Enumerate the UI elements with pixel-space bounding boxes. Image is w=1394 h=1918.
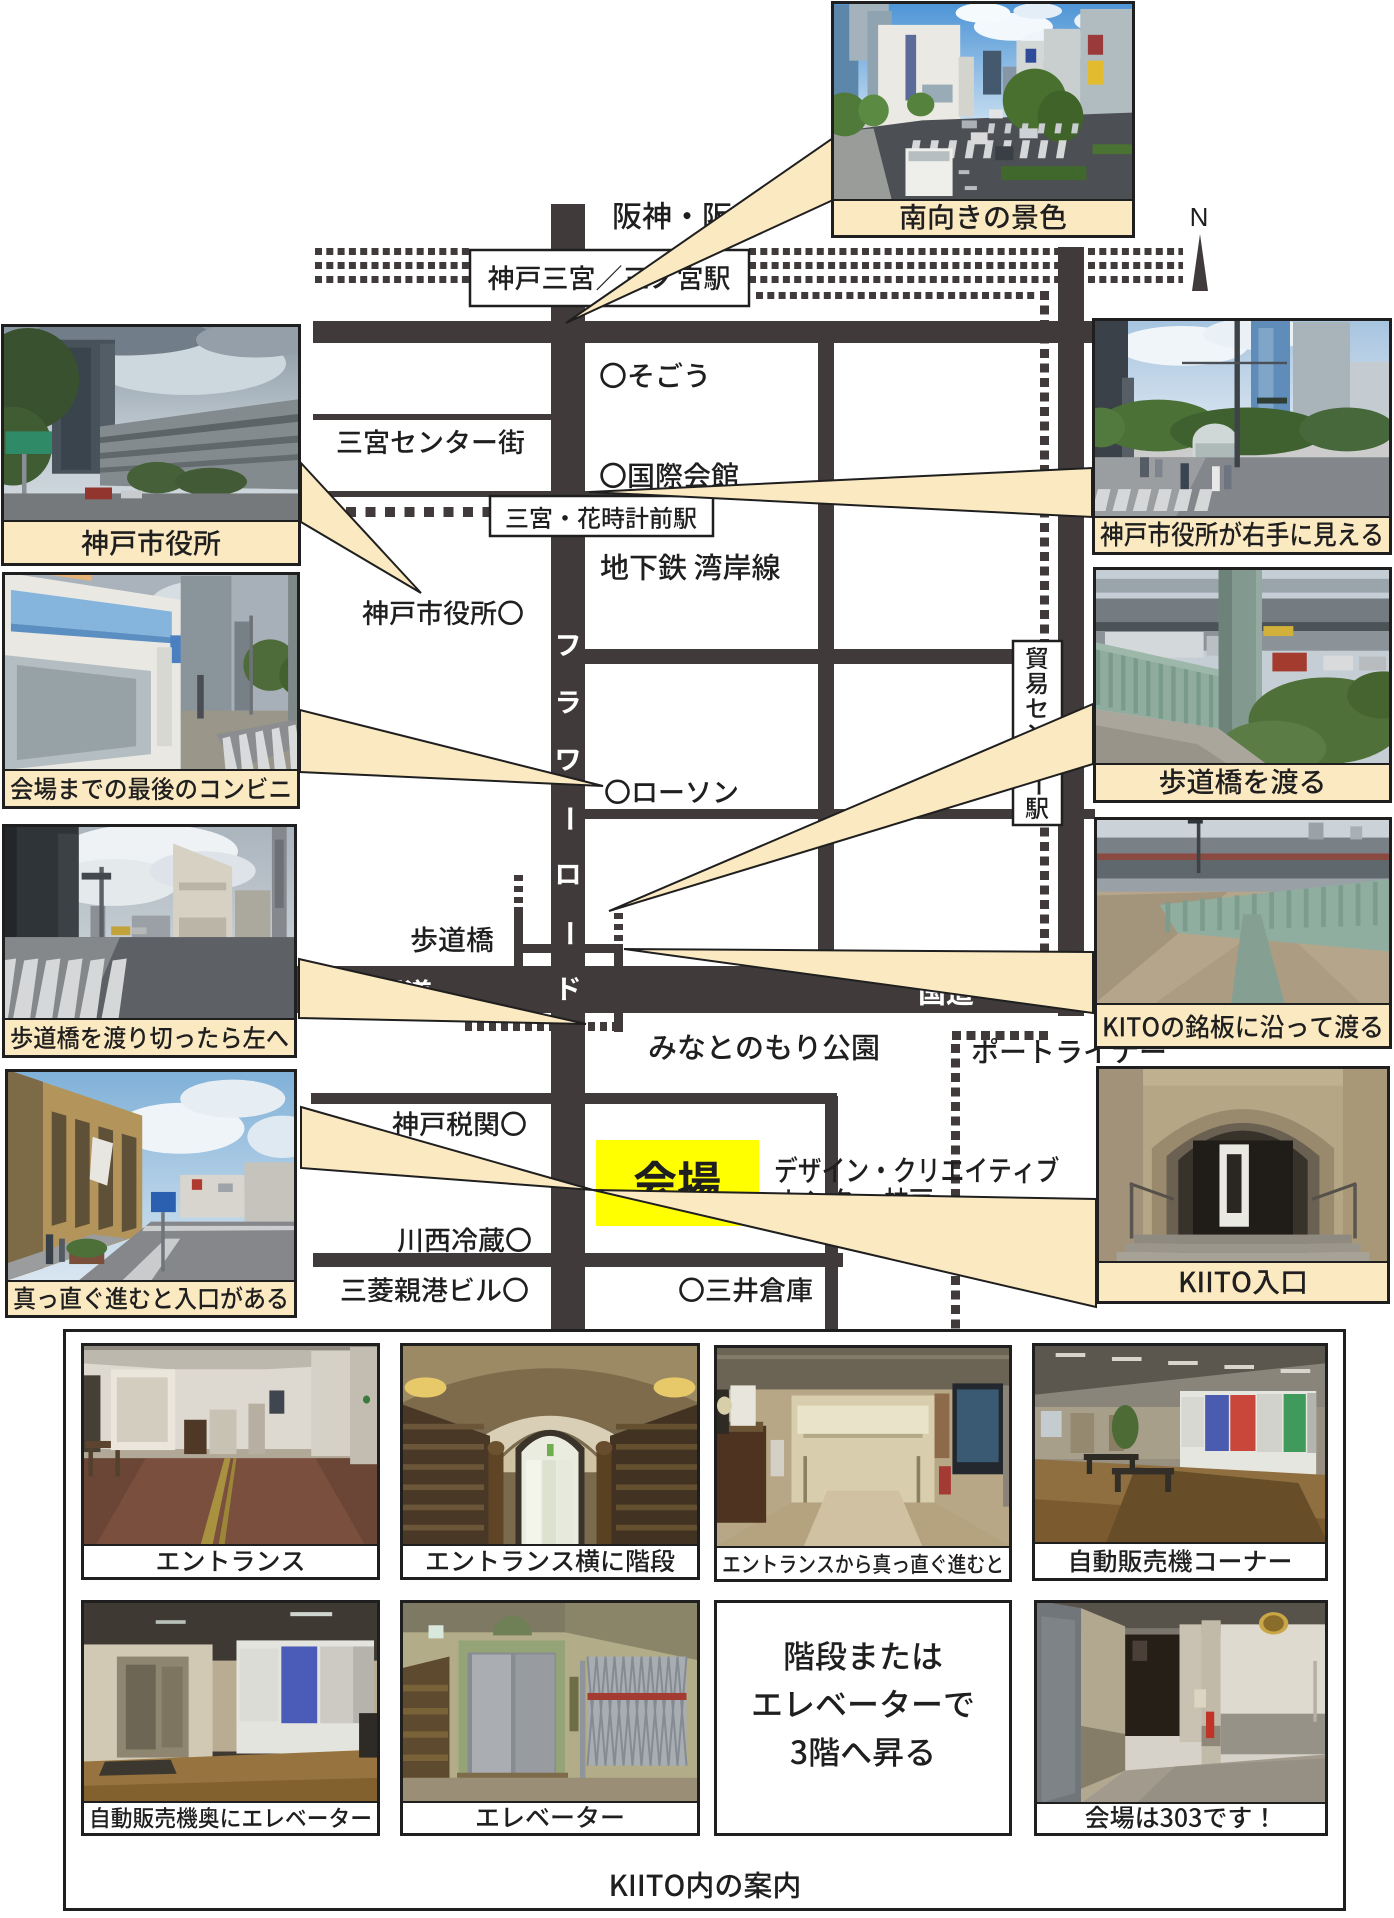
svg-text:N: N: [1190, 202, 1209, 232]
